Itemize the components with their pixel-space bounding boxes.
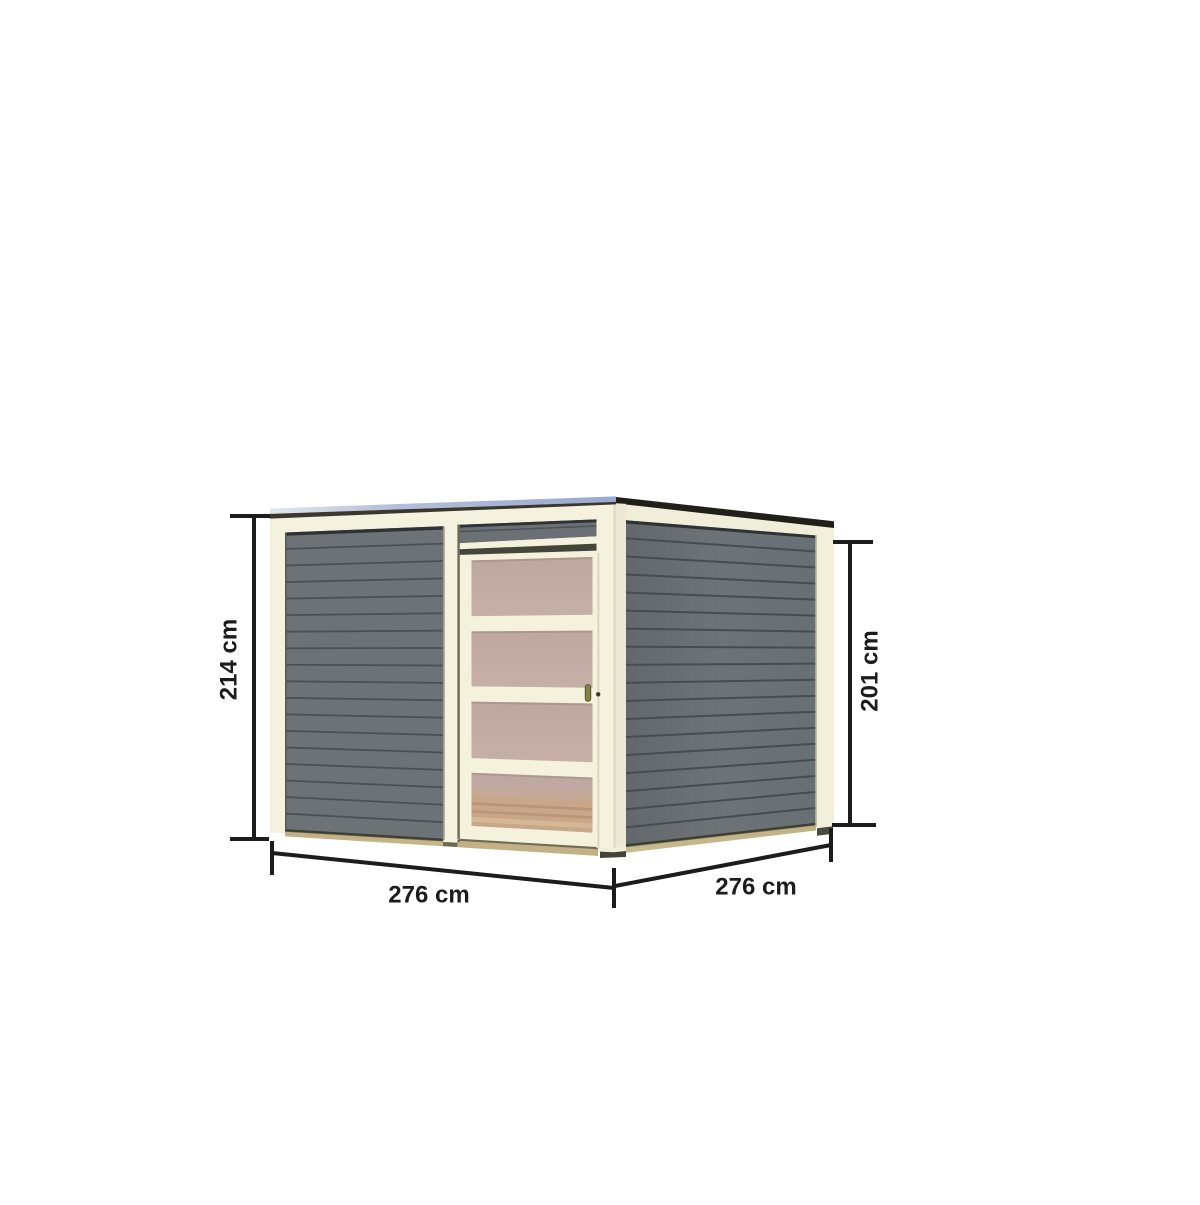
svg-text:201 cm: 201 cm <box>857 630 884 711</box>
svg-text:276 cm: 276 cm <box>388 882 469 909</box>
svg-text:276 cm: 276 cm <box>715 874 796 901</box>
svg-text:214 cm: 214 cm <box>216 619 243 700</box>
